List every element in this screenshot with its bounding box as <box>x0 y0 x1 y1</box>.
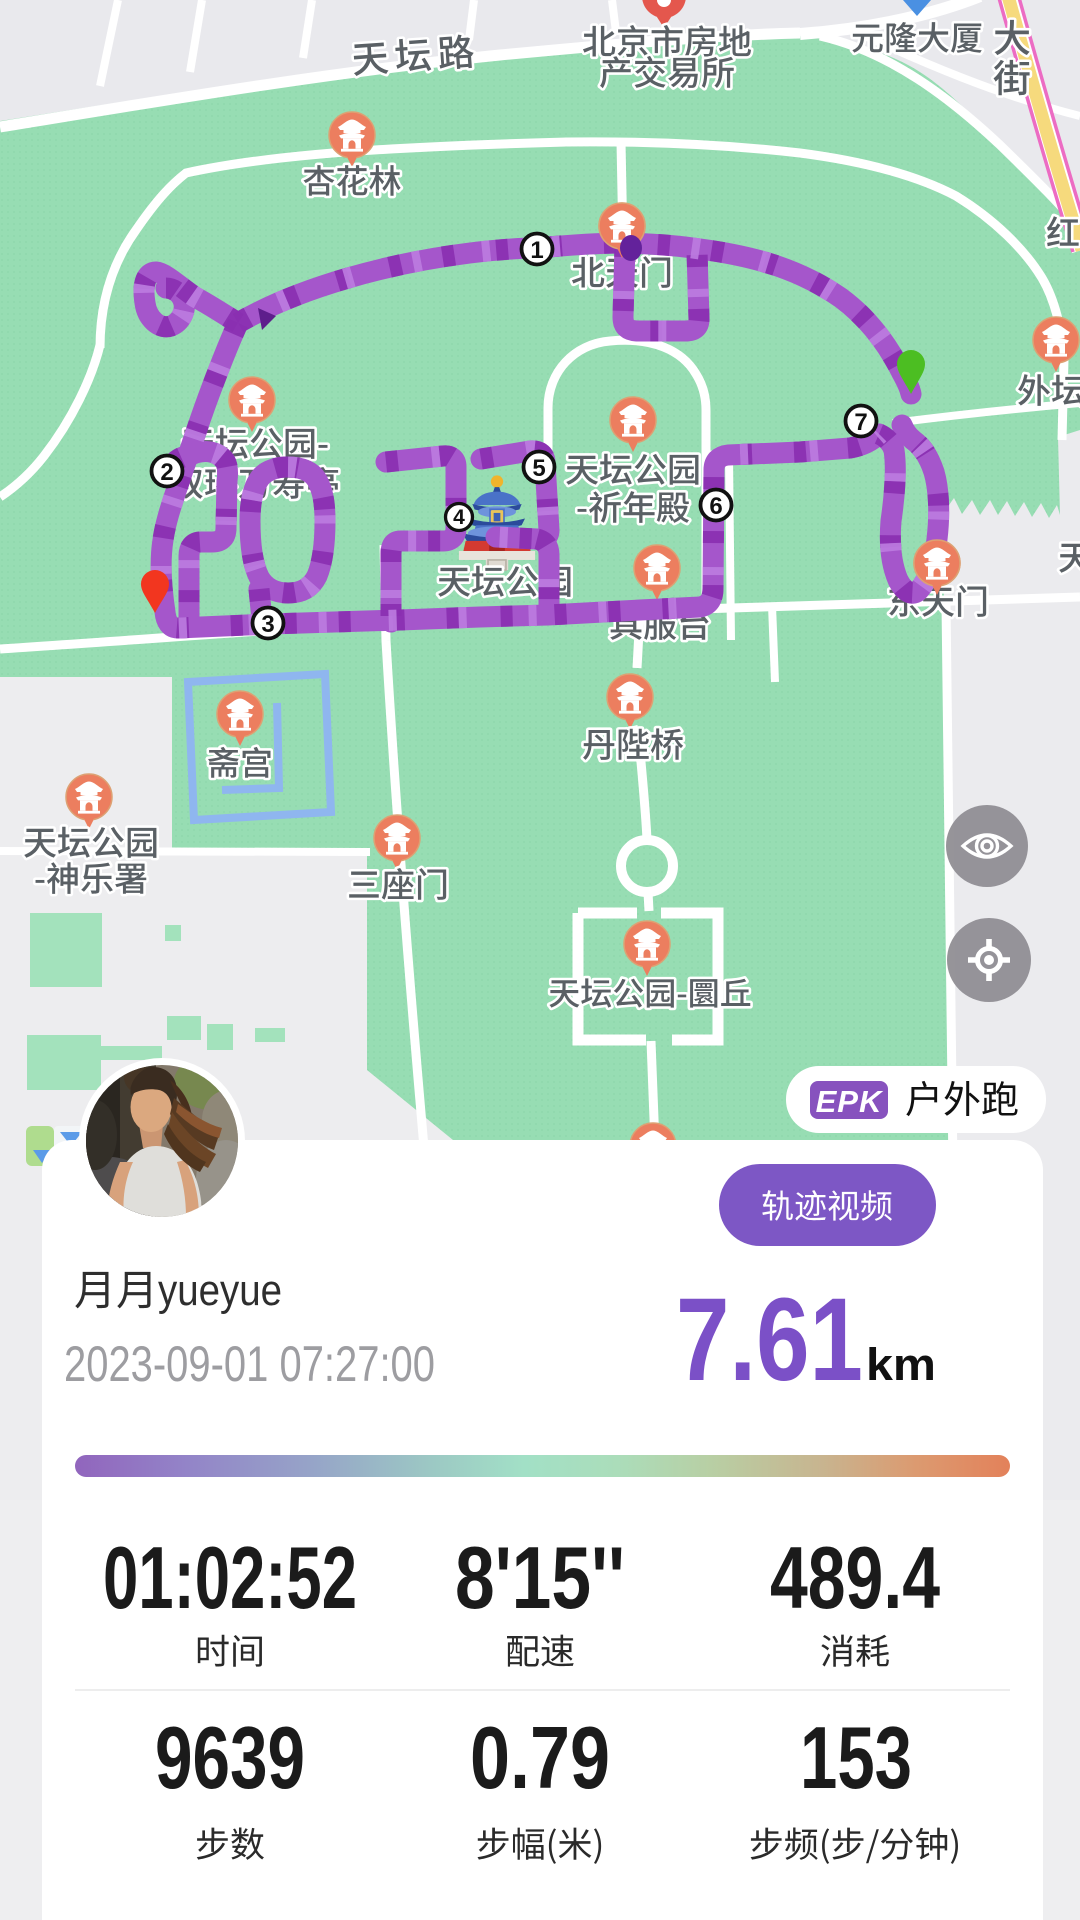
svg-text:0.79: 0.79 <box>470 1708 610 1807</box>
svg-text:4: 4 <box>453 506 465 529</box>
svg-text:2: 2 <box>160 459 173 486</box>
svg-text:km: km <box>866 1339 936 1390</box>
svg-text:7.61: 7.61 <box>676 1274 863 1406</box>
svg-text:3: 3 <box>261 611 274 638</box>
svg-text:EPK: EPK <box>816 1084 884 1119</box>
svg-text:6: 6 <box>709 493 722 520</box>
svg-text:5: 5 <box>532 455 545 482</box>
svg-text:9639: 9639 <box>155 1708 305 1807</box>
svg-text:2023-09-01 07:27:00: 2023-09-01 07:27:00 <box>64 1336 435 1392</box>
svg-text:01:02:52: 01:02:52 <box>103 1528 357 1627</box>
svg-text:153: 153 <box>800 1708 912 1807</box>
svg-text:489.4: 489.4 <box>770 1528 940 1627</box>
svg-text:8'15'': 8'15'' <box>455 1528 625 1627</box>
svg-text:7: 7 <box>854 409 867 436</box>
svg-text:yueyue: yueyue <box>158 1266 282 1315</box>
svg-text:1: 1 <box>530 237 543 264</box>
